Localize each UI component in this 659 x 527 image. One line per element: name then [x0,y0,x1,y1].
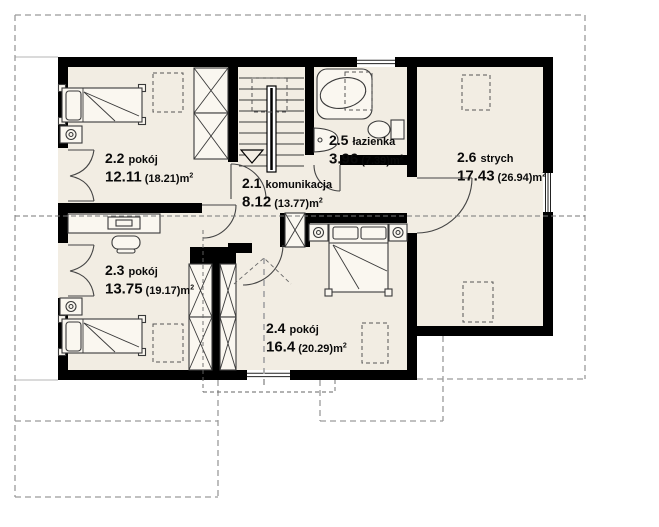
room-label-2-2: 2.2pokój 12.11(18.21)m2 [105,151,193,188]
room-area-gross: (18.21) [145,173,180,185]
room-area: 3.96 [329,151,358,168]
room-name: komunikacja [265,179,332,191]
wall-attic-west-upper [407,67,417,177]
room-label-2-6: 2.6strych 17.43(26.94)m2 [457,150,546,187]
double-bed-icon [325,224,392,296]
wall-closet-divider [212,264,220,370]
room-area: 17.43 [457,168,495,185]
room-area: 16.4 [266,339,295,356]
wall-bedroom24-north [310,213,407,223]
wall-jamb-wardrobe-left [280,213,285,247]
room-number: 2.5 [329,132,348,148]
room-label-2-1: 2.1komunikacja 8.12(13.77)m2 [242,176,332,213]
room-area: 8.12 [242,194,271,211]
room-name: łazienka [352,136,395,148]
wall-bedroom22-south [68,203,202,213]
nightstand-icon [309,224,328,241]
room-area-gross: (19.17) [146,285,181,297]
room-number: 2.1 [242,175,261,191]
single-bed-icon [59,316,146,356]
room-number: 2.6 [457,149,476,165]
single-bed-icon [59,85,146,125]
floor-plan-canvas: 2.2pokój 12.11(18.21)m2 2.1komunikacja 8… [0,0,659,527]
room-name: pokój [289,324,318,336]
room-label-2-5: 2.5łazienka 3.96(7.39)m2 [329,133,404,170]
room-number: 2.3 [105,262,124,278]
room-label-2-3: 2.3pokój 13.75(19.17)m2 [105,263,194,300]
room-number: 2.4 [266,320,285,336]
nightstand-icon [60,298,82,315]
room-number: 2.2 [105,150,124,166]
nightstand-icon [389,224,407,241]
wardrobe-icon [194,68,228,159]
room-name: strych [480,153,513,165]
window-bathroom-north [357,57,395,67]
room-label-2-4: 2.4pokój 16.4(20.29)m2 [266,321,347,358]
area-unit: m2 [180,285,194,297]
room-area-gross: (13.77) [274,198,309,210]
area-unit: m2 [180,173,194,185]
room-area: 12.11 [105,169,142,186]
nightstand-icon [60,126,82,143]
area-unit: m2 [390,155,404,167]
area-unit: m2 [309,198,323,210]
room-area-gross: (7.39) [361,155,390,167]
wardrobe-icon [285,213,305,247]
wall-bedroom22-east [228,67,238,162]
area-unit: m2 [333,343,347,355]
stair-handrail [267,86,276,172]
window-bedroom24-south [247,370,290,380]
wardrobe-icon [220,264,236,370]
wall-bathroom-west [305,67,314,155]
floor-plan-drawing [0,0,659,527]
area-unit: m2 [532,172,546,184]
room-area-gross: (20.29) [298,343,333,355]
desk-icon [68,214,160,233]
chimney [190,247,228,264]
room-area-gross: (26.94) [498,172,533,184]
wall-attic-west-lower [407,233,417,326]
room-area: 13.75 [105,281,143,298]
room-name: pokój [128,154,157,166]
room-name: pokój [128,266,157,278]
